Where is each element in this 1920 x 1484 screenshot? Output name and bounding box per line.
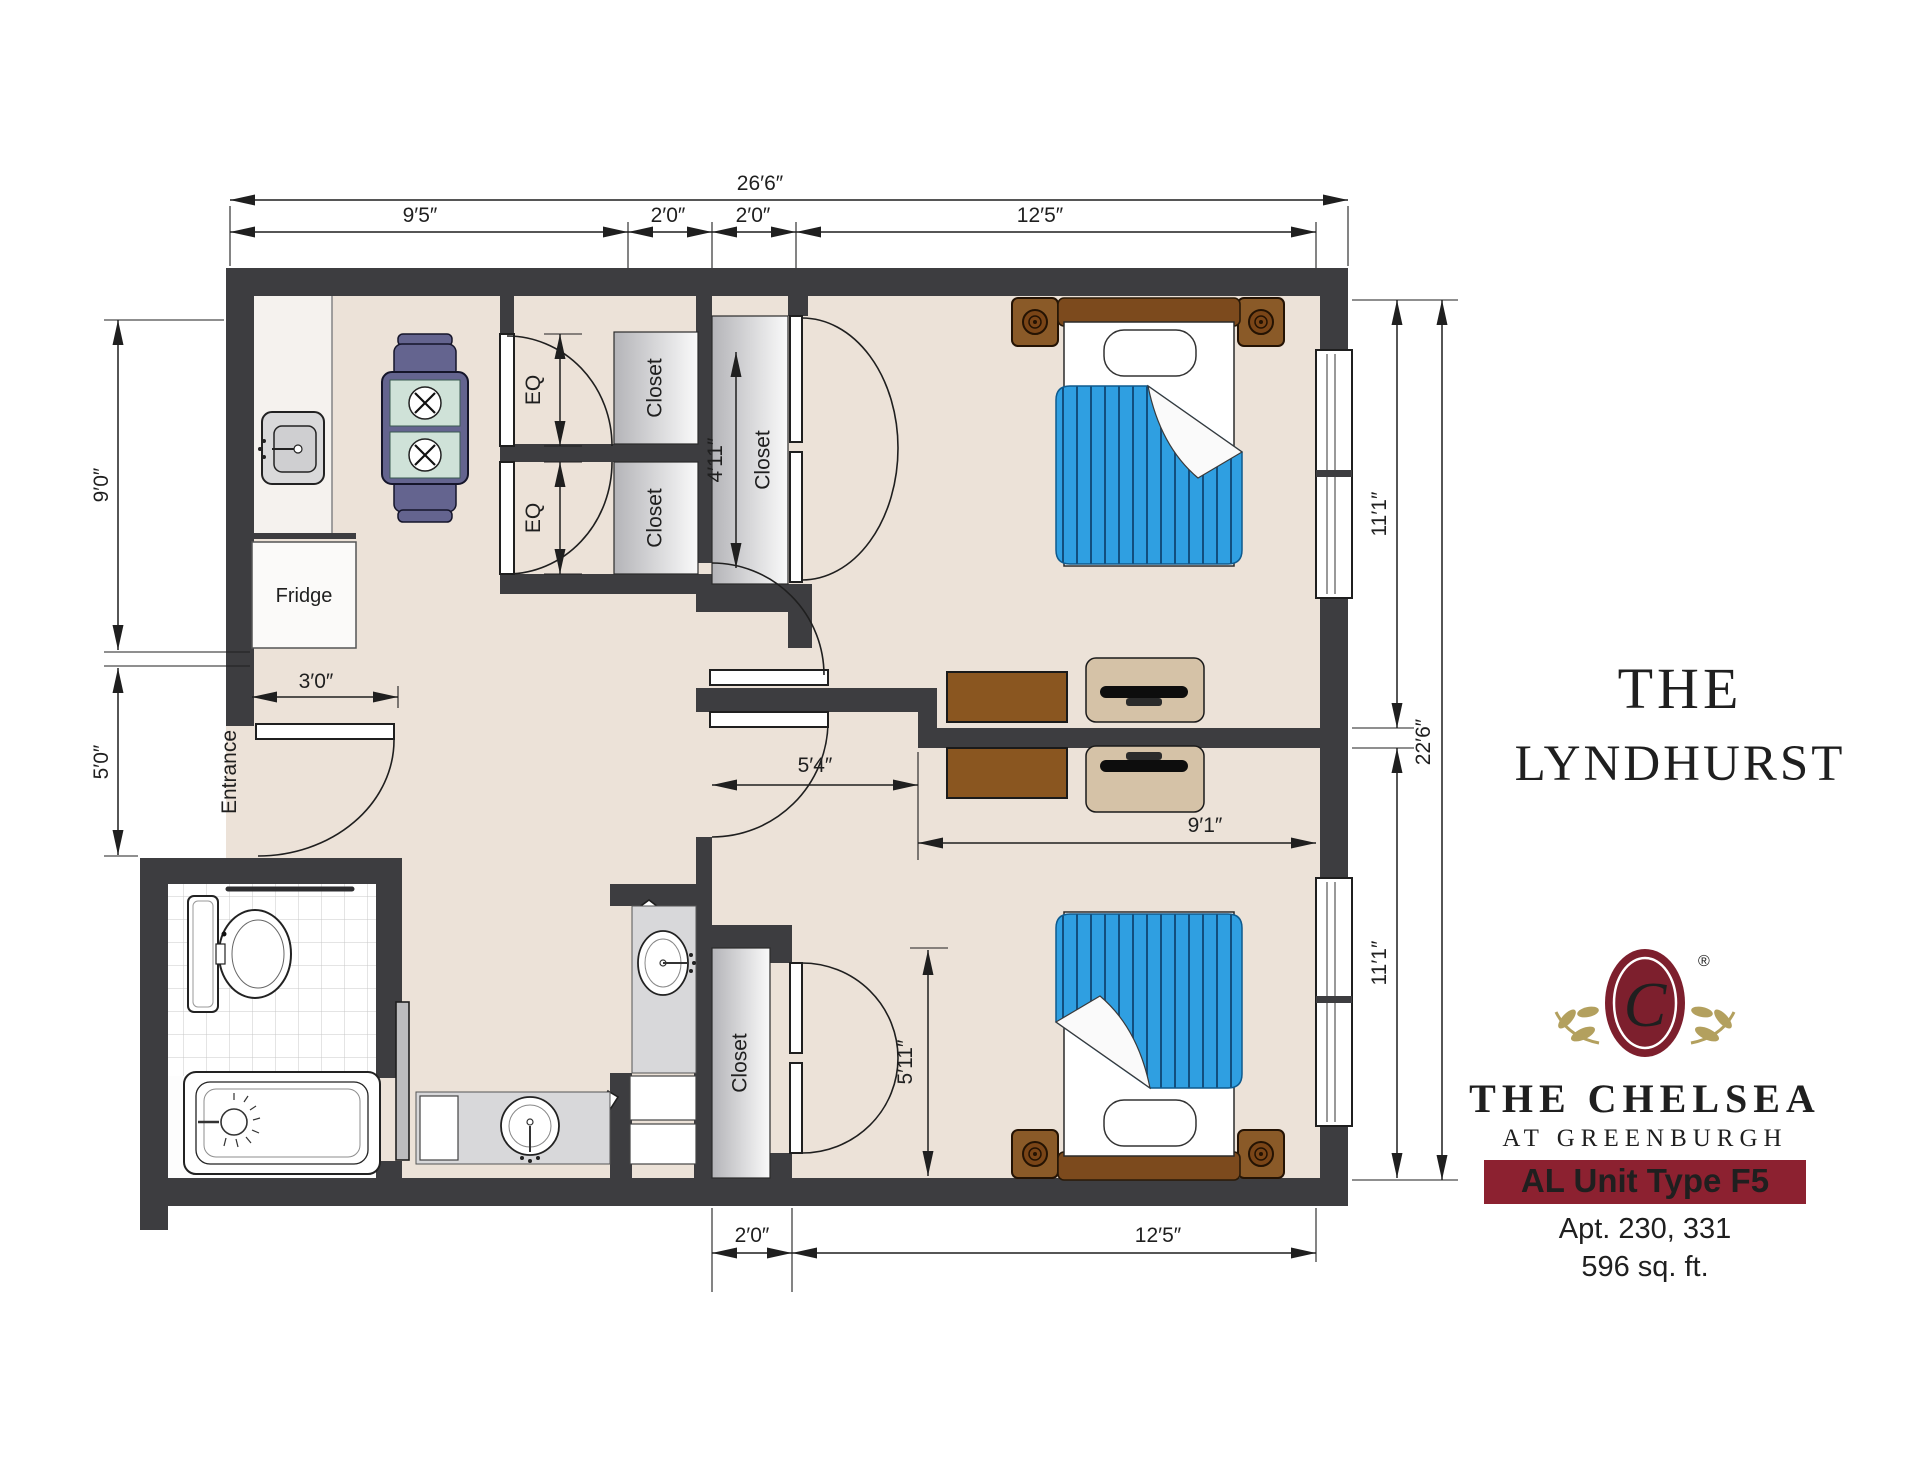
bed <box>1056 912 1242 1180</box>
wall-closet2-top <box>694 925 792 948</box>
wall-bathroom-top <box>140 858 402 884</box>
dining-set <box>382 334 468 522</box>
wall-closet-door-jamb-top <box>500 296 514 334</box>
dim-top-closet-b: 2′0″ <box>736 204 771 227</box>
vanity-lower <box>416 1092 610 1164</box>
logo-monogram: C <box>1624 969 1668 1040</box>
closet-lower-label: Closet <box>644 488 667 548</box>
chair-bottom-back <box>398 510 452 522</box>
bathtub <box>184 1072 380 1174</box>
dim-entry-door: 3′0″ <box>299 670 334 693</box>
wall-bathroom-left <box>140 858 168 1178</box>
dim-eq-upper: EQ <box>522 375 545 405</box>
unit-area: 596 sq. ft. <box>1581 1251 1708 1283</box>
wall-closet-divider <box>500 444 712 462</box>
counter-edge-dark <box>250 533 356 539</box>
bed <box>1056 298 1242 566</box>
laurel-left-icon <box>1555 1005 1600 1045</box>
window-bedroom2 <box>1316 878 1352 1126</box>
closet-upper-label: Closet <box>644 358 667 418</box>
unit-title-line2: LYNDHURST <box>1515 736 1846 792</box>
dim-closet2-height: 5′11″ <box>894 1039 917 1084</box>
dim-hall: 5′4″ <box>798 754 833 777</box>
brand-name: THE CHELSEA <box>1469 1076 1821 1121</box>
chelsea-logo: C ® <box>1555 949 1734 1057</box>
vanity-lower-cabinet <box>420 1096 458 1160</box>
wall-bedrooms-lower <box>918 728 1320 748</box>
dim-top-bedroom1: 12′5″ <box>1017 204 1064 227</box>
apartment-numbers: Apt. 230, 331 <box>1559 1213 1732 1245</box>
vanity-upper <box>630 906 696 1164</box>
wall-bedrooms-upper <box>696 688 937 712</box>
dim-bottom-bedroom2: 12′5″ <box>1135 1224 1182 1247</box>
wall-vanity-divider <box>610 1073 632 1178</box>
dim-eq-lower: EQ <box>522 503 545 533</box>
wall-vanity-top <box>610 884 698 906</box>
window-bedroom1 <box>1316 350 1352 598</box>
wall-bifold-hinge-top <box>788 296 808 316</box>
closet-bedroom1-label: Closet <box>752 430 775 490</box>
wall-top <box>226 268 1348 296</box>
registered-mark: ® <box>1698 953 1710 970</box>
dim-left-kitchen: 9′0″ <box>90 467 113 502</box>
dim-right-bedroom1: 11′1″ <box>1368 491 1391 536</box>
closet-bedroom2-label: Closet <box>729 1033 752 1093</box>
floor-plan-canvas: Closet Closet Closet Closet <box>0 0 1920 1484</box>
pillow <box>1104 330 1196 376</box>
dim-top-kitchen: 9′5″ <box>403 204 438 227</box>
wall-closet2-right-a <box>770 948 792 963</box>
dim-overall-top: 26′6″ <box>737 172 784 195</box>
brand-location: AT GREENBURGH <box>1502 1125 1787 1152</box>
wall-left <box>226 268 254 726</box>
wall-closet2-left <box>694 948 712 1178</box>
dim-top-closet-a: 2′0″ <box>651 204 686 227</box>
kitchen-sink <box>258 412 324 484</box>
vanity-upper-cabinet-b <box>630 1124 696 1164</box>
dim-left-entry: 5′0″ <box>90 744 113 779</box>
dim-right-bedroom2: 11′1″ <box>1368 940 1391 985</box>
fridge-label: Fridge <box>276 585 333 607</box>
dim-right-total: 22′6″ <box>1412 718 1435 765</box>
wall-bottom <box>140 1178 1348 1206</box>
floor-plan-page: Closet Closet Closet Closet <box>0 0 1920 1484</box>
dim-bedroom2-width: 9′1″ <box>1188 814 1223 837</box>
unit-type-label: AL Unit Type F5 <box>1521 1162 1769 1199</box>
vanity-upper-cabinet-a <box>630 1076 696 1120</box>
desk <box>947 672 1067 722</box>
branding: THE LYNDHURST C ® THE CHELSEA AT GREENBU… <box>1469 656 1845 1283</box>
wall-closet2-right-b <box>770 1153 792 1178</box>
bathroom-pocket-door <box>396 1002 409 1160</box>
desk <box>947 748 1067 798</box>
entrance-label: Entrance <box>218 730 241 814</box>
dim-bottom-closet: 2′0″ <box>735 1224 770 1247</box>
wall-bottom-left-foot <box>140 1206 168 1230</box>
laurel-right-icon <box>1690 1005 1735 1045</box>
pillow <box>1104 1100 1196 1146</box>
wall-closet-b-bottom <box>696 584 812 612</box>
wall-under-closets <box>500 574 712 594</box>
dim-closet-depth: 4′11″ <box>704 437 727 482</box>
unit-title-line1: THE <box>1618 656 1743 721</box>
